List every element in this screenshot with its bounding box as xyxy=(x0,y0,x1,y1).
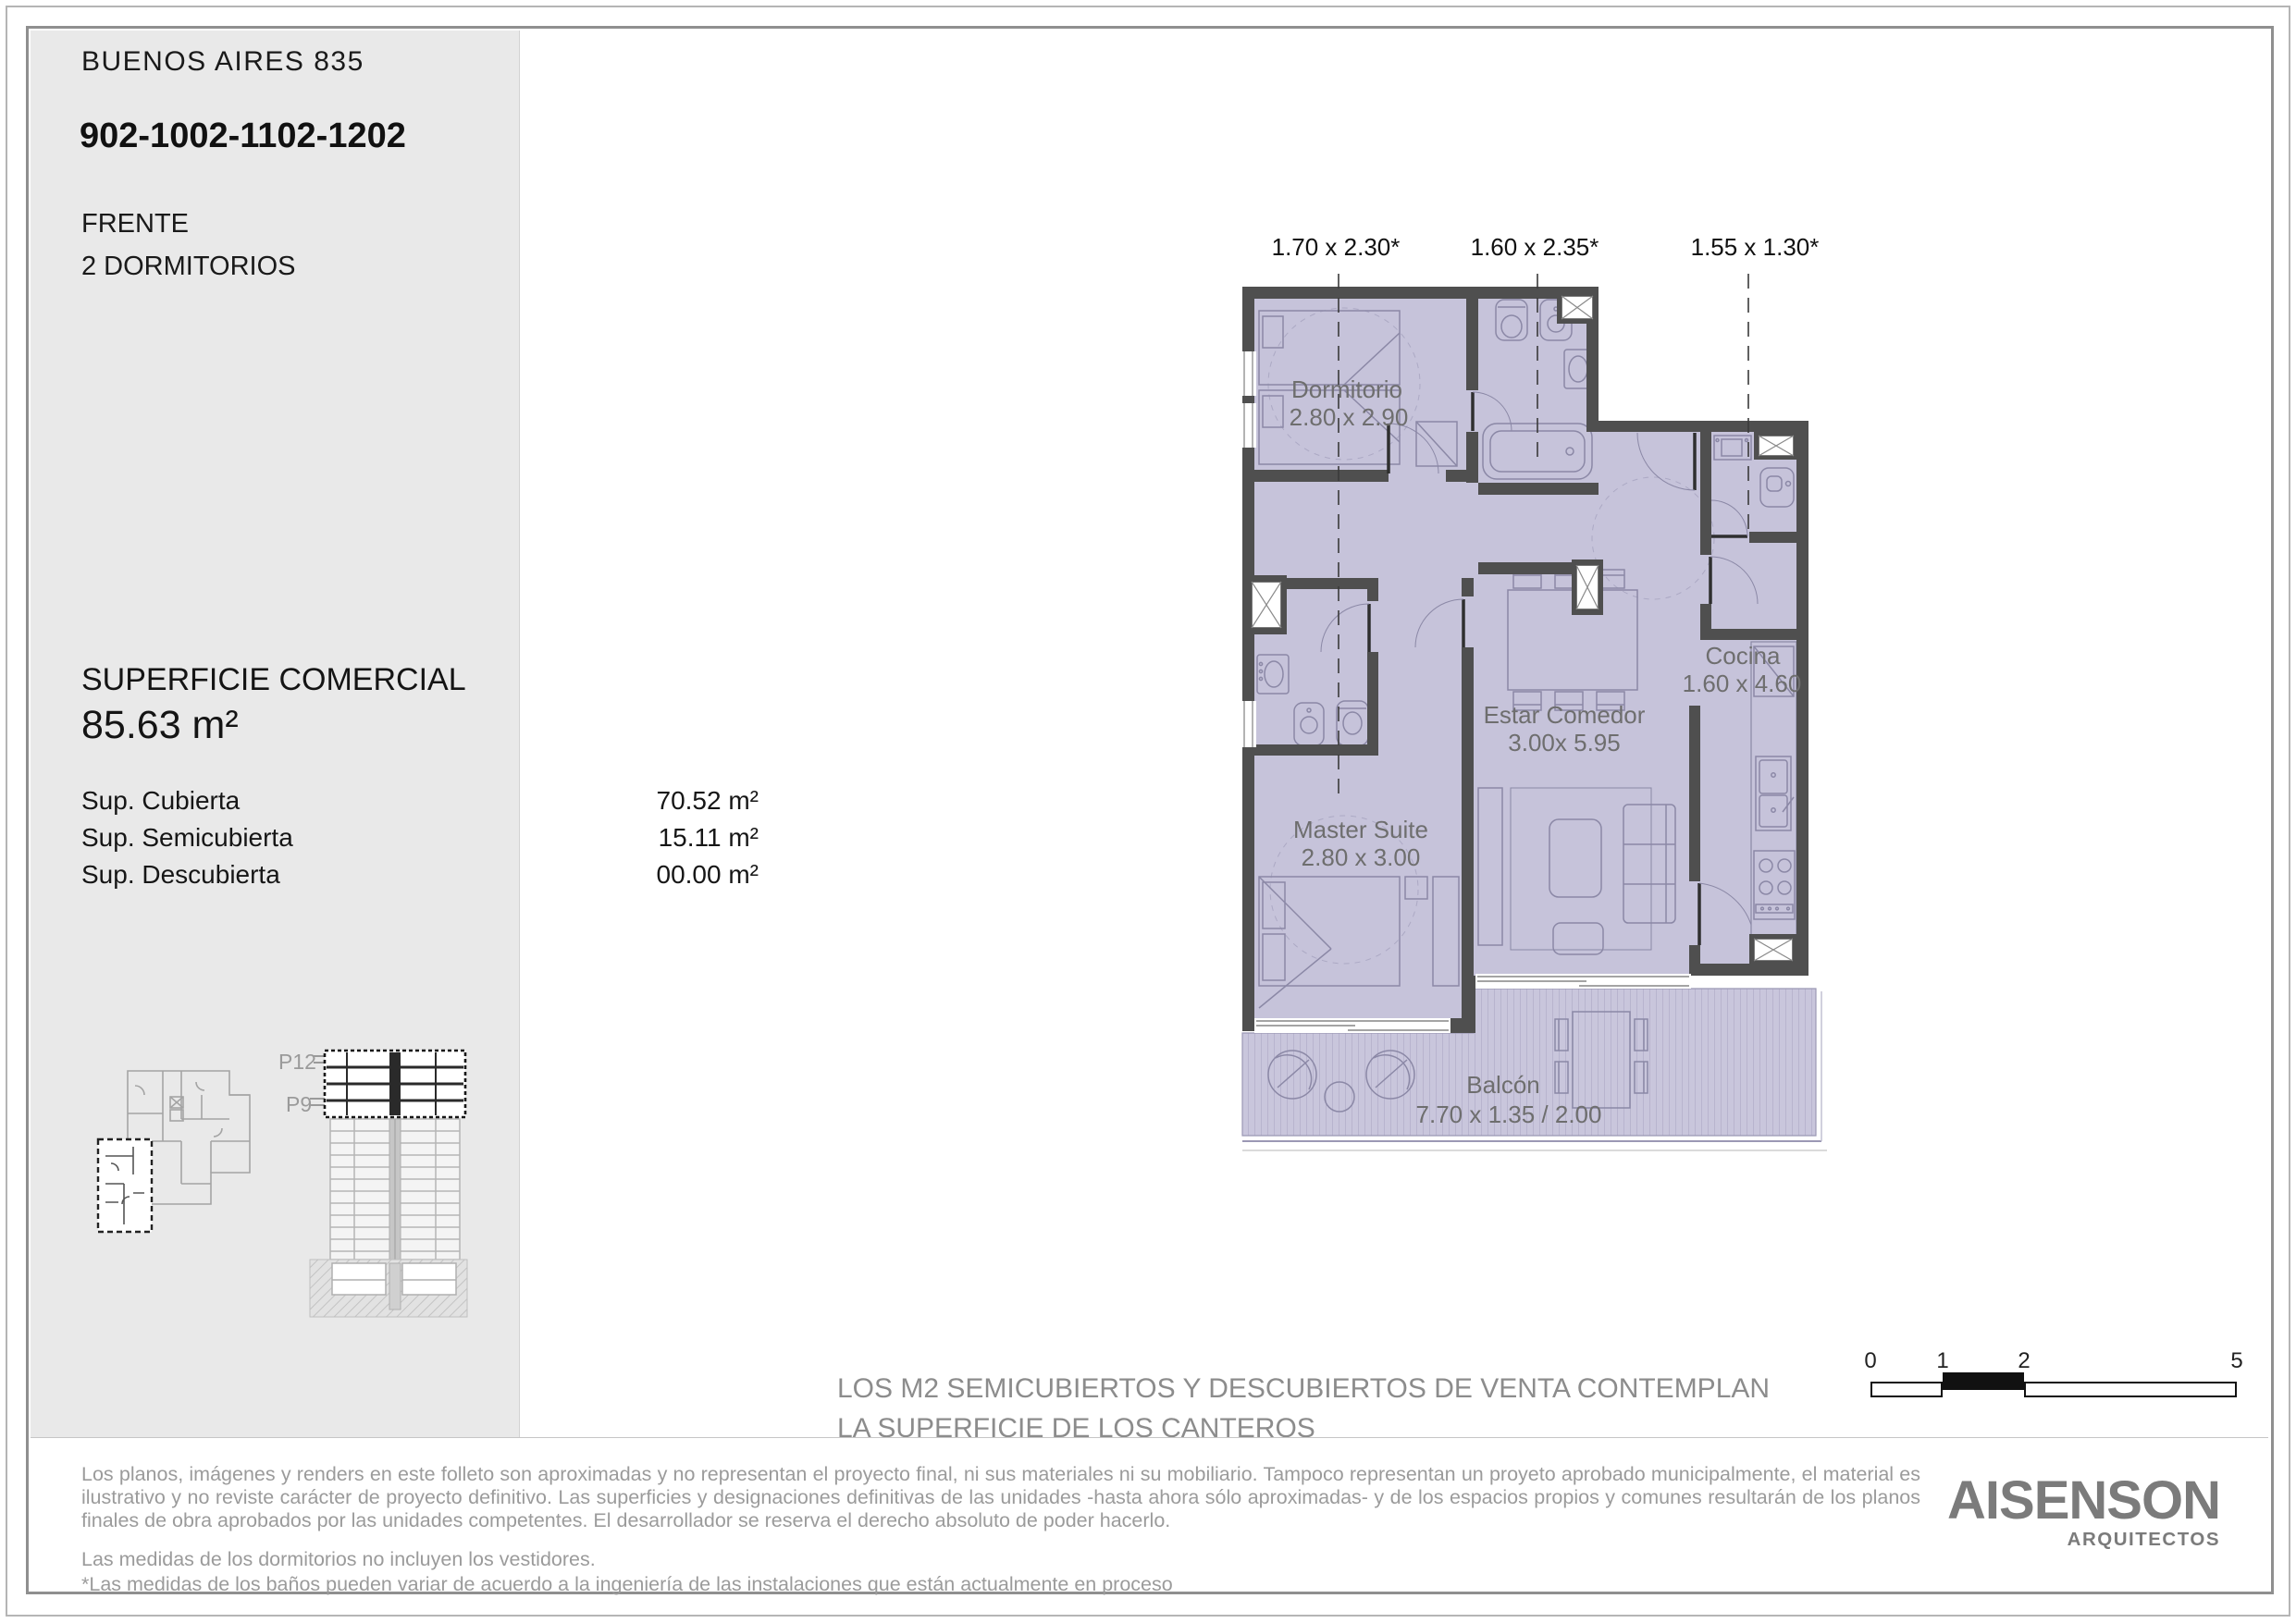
shaft xyxy=(1557,290,1598,324)
table-row: Sup. Cubierta 70.52 m² xyxy=(81,782,759,819)
key-plan-diagram xyxy=(93,1064,264,1239)
studio-logo: AISENSON ARQUITECTOS xyxy=(1922,1474,2220,1551)
window xyxy=(1241,403,1256,448)
unit-numbers: 902-1002-1102-1202 xyxy=(80,117,406,156)
surface-title: SUPERFICIE COMERCIAL xyxy=(81,662,466,698)
floor-plan: 1.70 x 2.30* 1.60 x 2.35* 1.55 x 1.30* D… xyxy=(1235,194,1845,1156)
sliding-door-master xyxy=(1254,1018,1450,1033)
orientation-label: FRENTE xyxy=(81,209,189,240)
surface-row-label: Sup. Semicubierta xyxy=(81,819,293,856)
dim-label: 1.70 x 2.30* xyxy=(1272,233,1401,261)
room-size: 2.80 x 3.00 xyxy=(1302,843,1421,871)
room-size: 3.00x 5.95 xyxy=(1508,729,1620,756)
scale-segment xyxy=(2024,1382,2237,1397)
floor-label-p12: P12 xyxy=(278,1050,316,1074)
disclaimer-paragraph: Los planos, imágenes y renders en este f… xyxy=(81,1463,1920,1532)
dimension-labels: 1.70 x 2.30* 1.60 x 2.35* 1.55 x 1.30* xyxy=(1272,233,1820,261)
surface-total: 85.63 m² xyxy=(81,703,239,748)
scale-bar: 0 1 2 5 xyxy=(1859,1348,2248,1408)
logo-subtitle: ARQUITECTOS xyxy=(1922,1529,2220,1551)
sliding-door-living xyxy=(1475,974,1691,989)
surface-table: Sup. Cubierta 70.52 m² Sup. Semicubierta… xyxy=(81,782,759,893)
scale-tick: 1 xyxy=(1936,1348,1948,1374)
scale-segment xyxy=(1870,1382,1943,1397)
window xyxy=(1241,351,1256,396)
room-size: 2.80 x 2.90 xyxy=(1290,403,1409,431)
room-name: Cocina xyxy=(1706,642,1781,670)
dim-label: 1.55 x 1.30* xyxy=(1691,233,1820,261)
surface-row-value: 15.11 m² xyxy=(659,819,759,856)
surface-row-label: Sup. Cubierta xyxy=(81,782,240,819)
scale-tick: 5 xyxy=(2230,1348,2242,1374)
room-size: 1.60 x 4.60 xyxy=(1683,670,1802,697)
room-name: Balcón xyxy=(1466,1071,1540,1099)
room-name: Dormitorio xyxy=(1291,375,1402,403)
shaft xyxy=(1749,934,1797,965)
room-size: 7.70 x 1.35 / 2.00 xyxy=(1416,1100,1602,1128)
disclaimer-line: Las medidas de los dormitorios no incluy… xyxy=(81,1547,1920,1572)
sales-note-line1: LOS M2 SEMICUBIERTOS Y DESCUBIERTOS DE V… xyxy=(837,1369,1770,1408)
highlighted-floors xyxy=(325,1051,465,1117)
project-title: BUENOS AIRES 835 xyxy=(81,46,364,78)
scale-tick: 0 xyxy=(1864,1348,1876,1374)
scale-tick: 2 xyxy=(2018,1348,2030,1374)
table-row: Sup. Descubierta 00.00 m² xyxy=(81,856,759,893)
dim-label: 1.60 x 2.35* xyxy=(1471,233,1599,261)
surface-row-label: Sup. Descubierta xyxy=(81,856,280,893)
shaft xyxy=(1754,432,1798,460)
disclaimer-block: Los planos, imágenes y renders en este f… xyxy=(81,1463,1920,1597)
logo-name: AISENSON xyxy=(1922,1474,2220,1528)
disclaimer-line: *Las medidas de los baños pueden variar … xyxy=(81,1572,1920,1597)
floor-label-p9: P9 xyxy=(286,1092,312,1116)
highlighted-unit xyxy=(98,1139,152,1232)
window xyxy=(1241,701,1256,747)
surface-row-value: 00.00 m² xyxy=(657,856,759,893)
typology-label: 2 DORMITORIOS xyxy=(81,252,296,282)
table-row: Sup. Semicubierta 15.11 m² xyxy=(81,819,759,856)
room-name: Master Suite xyxy=(1293,816,1428,843)
footer-divider xyxy=(31,1437,2268,1438)
ground-section xyxy=(310,1260,467,1317)
surface-row-value: 70.52 m² xyxy=(657,782,759,819)
sales-note-line2: LA SUPERFICIE DE LOS CANTEROS xyxy=(837,1408,1770,1448)
shaft xyxy=(1246,575,1287,634)
tower-body xyxy=(330,1119,460,1260)
scale-segment xyxy=(1943,1372,2024,1390)
room-name: Estar Comedor xyxy=(1484,701,1646,729)
building-section-diagram: P12 P9 xyxy=(262,1043,475,1339)
shaft xyxy=(1572,559,1603,615)
